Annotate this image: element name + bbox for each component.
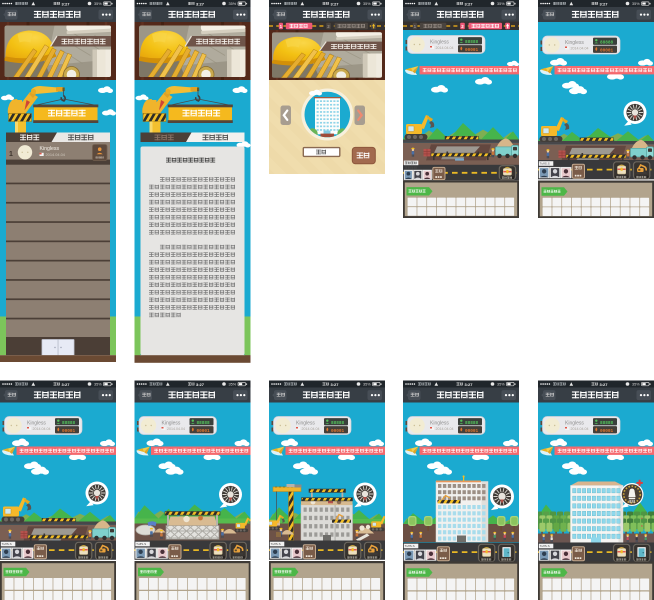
svg-text:TuffS.S: TuffS.S — [271, 542, 281, 546]
svg-text:TuffS.S: TuffS.S — [2, 542, 12, 546]
svg-text:Kingless: Kingless — [430, 39, 449, 45]
svg-text:00001: 00001 — [197, 429, 211, 434]
svg-text:3:27: 3:27 — [600, 1, 609, 6]
svg-text:88888: 88888 — [465, 40, 479, 45]
svg-text:88888: 88888 — [600, 40, 614, 45]
svg-text:3:27: 3:27 — [331, 382, 340, 387]
svg-text:2014.04.04: 2014.04.04 — [33, 427, 51, 431]
svg-text:3:27: 3:27 — [196, 1, 205, 6]
svg-text:TuffS.S: TuffS.S — [136, 542, 146, 546]
svg-text:3:27: 3:27 — [331, 1, 340, 6]
svg-text:35%: 35% — [363, 383, 371, 387]
svg-text:35%: 35% — [497, 2, 505, 6]
svg-text:00001: 00001 — [600, 48, 614, 53]
svg-text:88888: 88888 — [465, 421, 479, 426]
svg-text:35%: 35% — [94, 2, 102, 6]
svg-text:00001: 00001 — [465, 429, 479, 434]
svg-text:2014.04.04: 2014.04.04 — [571, 47, 589, 51]
svg-text:3:27: 3:27 — [465, 1, 474, 6]
svg-text:Kingless: Kingless — [565, 420, 584, 426]
svg-text:00001: 00001 — [331, 429, 345, 434]
svg-text:2014.04.04: 2014.04.04 — [436, 46, 454, 50]
svg-text:00001: 00001 — [600, 429, 614, 434]
svg-text:Kingless: Kingless — [162, 420, 181, 426]
svg-text:35%: 35% — [363, 2, 371, 6]
svg-text:3:27: 3:27 — [62, 1, 71, 6]
svg-text:TuffS.S: TuffS.S — [540, 544, 550, 548]
svg-text:3:27: 3:27 — [465, 382, 474, 387]
svg-text:2014.04.04: 2014.04.04 — [46, 152, 66, 157]
svg-text:88888: 88888 — [600, 421, 614, 426]
svg-text:88888: 88888 — [331, 421, 345, 426]
svg-text:2014.04.04: 2014.04.04 — [167, 427, 185, 431]
svg-text:88888: 88888 — [62, 421, 76, 426]
svg-text:3:27: 3:27 — [196, 382, 205, 387]
svg-text:Kingless: Kingless — [430, 420, 449, 426]
svg-text:TuffS.S: TuffS.S — [540, 162, 550, 166]
svg-text:88888: 88888 — [96, 156, 105, 160]
svg-text:00001: 00001 — [62, 429, 76, 434]
svg-text:Kingless: Kingless — [565, 40, 584, 46]
svg-text:Kingless: Kingless — [296, 420, 315, 426]
svg-text:3:27: 3:27 — [62, 382, 71, 387]
svg-text:35%: 35% — [229, 383, 237, 387]
svg-text:35%: 35% — [94, 383, 102, 387]
svg-text:1: 1 — [9, 151, 13, 158]
svg-text:35%: 35% — [497, 383, 505, 387]
svg-text:2014.04.04: 2014.04.04 — [436, 427, 454, 431]
svg-text:Kingless: Kingless — [27, 420, 46, 426]
svg-text:00001: 00001 — [465, 48, 479, 53]
svg-text:2014.04.04: 2014.04.04 — [302, 427, 320, 431]
svg-text:2014.04.04: 2014.04.04 — [571, 427, 589, 431]
svg-text:TuffS.S: TuffS.S — [405, 544, 415, 548]
svg-text:35%: 35% — [632, 2, 640, 6]
svg-text:3:27: 3:27 — [600, 382, 609, 387]
svg-text:35%: 35% — [632, 383, 640, 387]
svg-text:35%: 35% — [229, 2, 237, 6]
svg-text:88888: 88888 — [197, 421, 211, 426]
